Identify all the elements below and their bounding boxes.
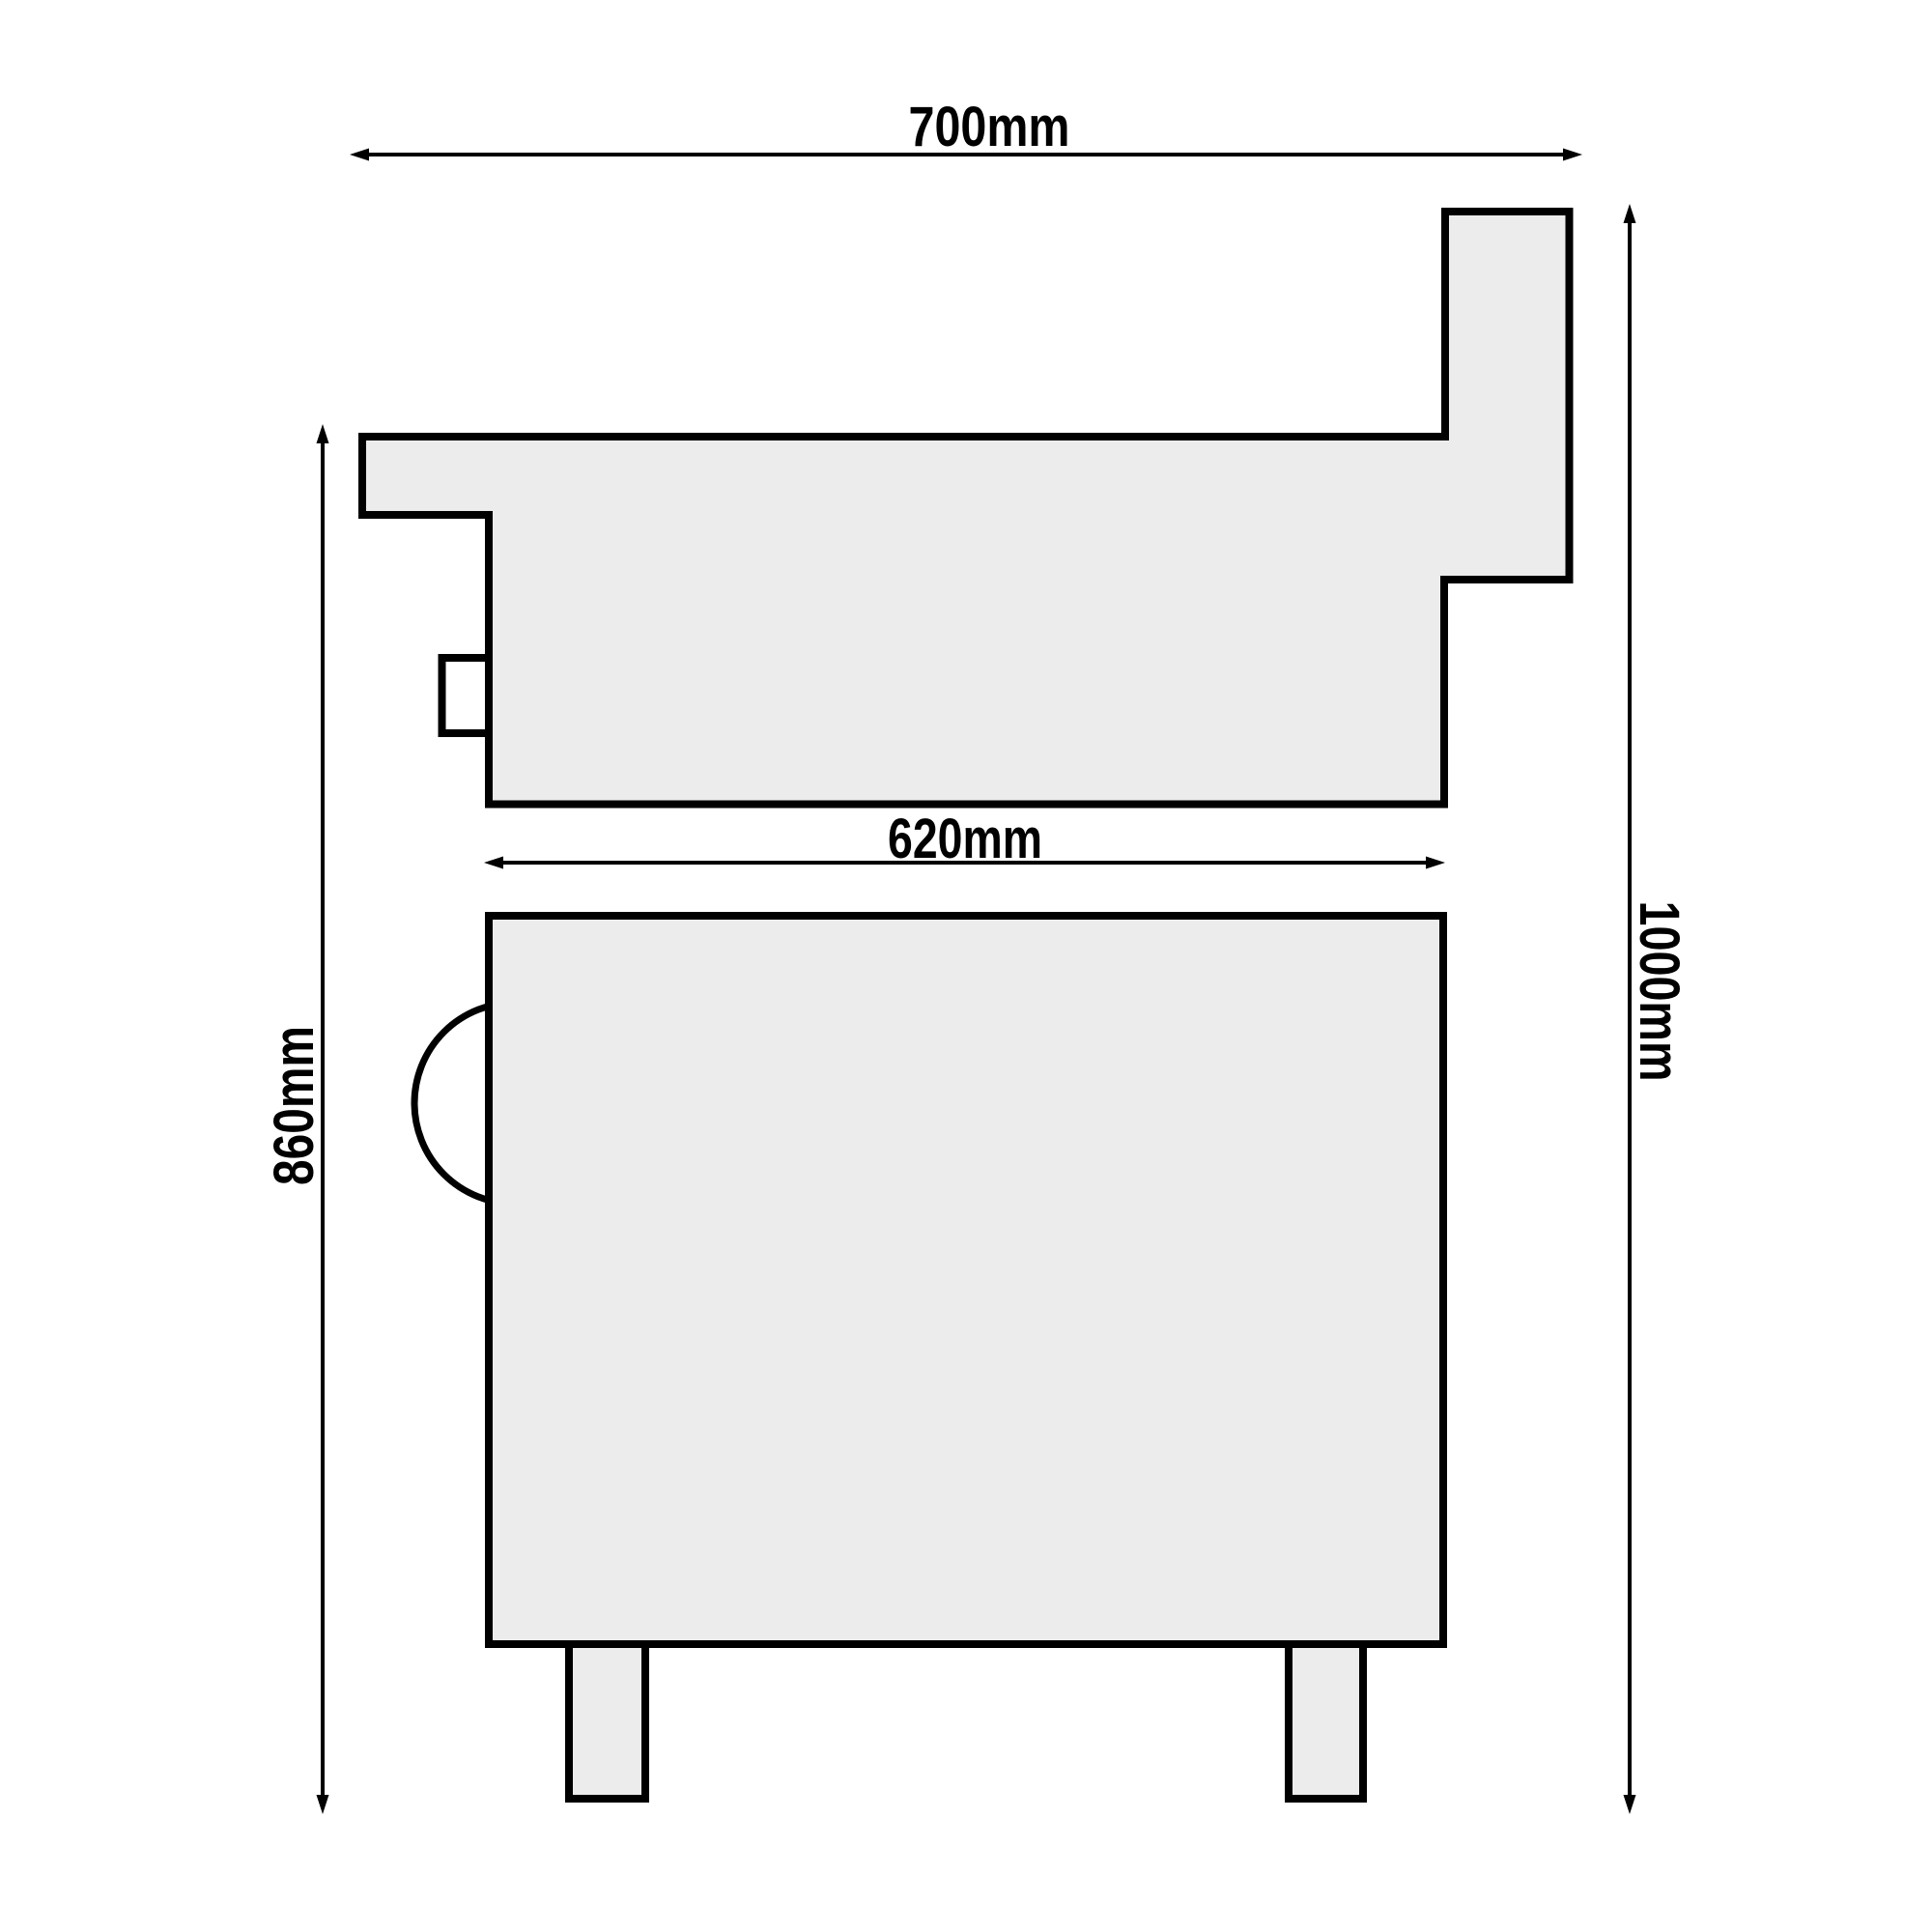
svg-text:1000mm: 1000mm	[1628, 901, 1690, 1082]
svg-text:860mm: 860mm	[263, 1026, 326, 1185]
svg-text:700mm: 700mm	[909, 96, 1070, 158]
svg-text:620mm: 620mm	[888, 808, 1042, 870]
